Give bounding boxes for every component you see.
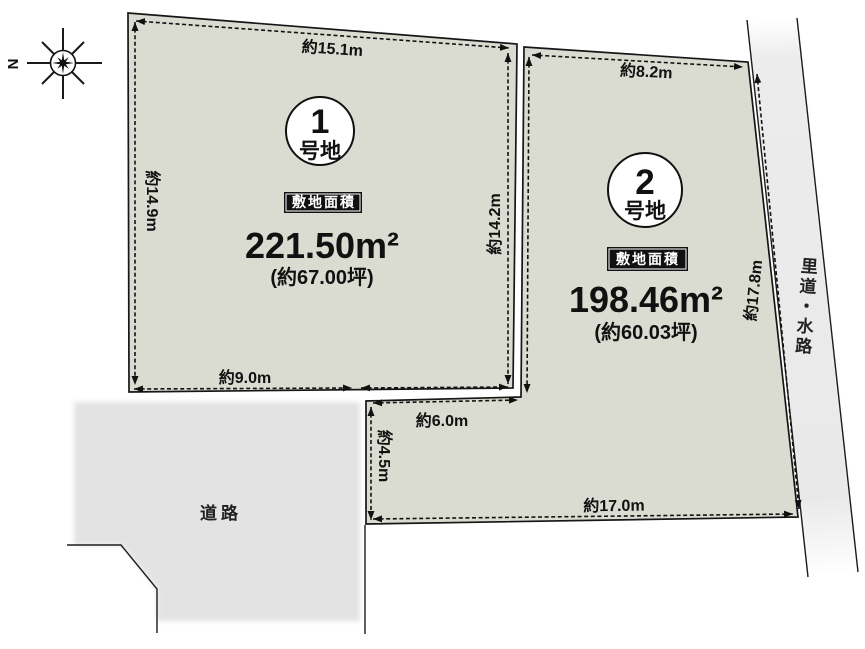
plot-2-area-label: 敷地面積 — [616, 251, 680, 267]
dim-label-plot1-bottom: 約9.0m — [219, 368, 271, 387]
dim-label-plot2-left: 約4.5m — [375, 430, 394, 482]
dim-label-plot1-left: 約14.9m — [143, 170, 162, 231]
dim-label-plot2-bottom: 約17.0m — [583, 496, 645, 516]
dim-label-plot2-step: 約6.0m — [416, 411, 468, 430]
plot-1-area-tsubo: (約67.00坪) — [270, 265, 373, 289]
plot-1-area-label: 敷地面積 — [292, 194, 356, 210]
dim-label-plot1-right: 約14.2m — [485, 193, 504, 254]
north-label: N — [5, 59, 22, 70]
plot-2-area-tsubo: (約60.03坪) — [594, 320, 697, 344]
plot-2-suffix: 号地 — [624, 199, 666, 223]
plot-1-suffix: 号地 — [299, 139, 341, 163]
site-plan-canvas: 約15.1m 約14.9m 約14.2m 約9.0m 約8.2m 約17.8m … — [0, 0, 865, 649]
compass-icon: N — [5, 28, 102, 99]
road-label: 道路 — [200, 503, 242, 523]
plot-1-badge: 1 号地 — [286, 97, 354, 165]
land-plot-diagram: 約15.1m 約14.9m 約14.2m 約9.0m 約8.2m 約17.8m … — [0, 0, 865, 649]
plot-1-number: 1 — [311, 103, 330, 141]
plot-1-area-value: 221.50m² — [245, 225, 399, 266]
plot-2-badge: 2 号地 — [608, 153, 682, 227]
plot-2-area-value: 198.46m² — [569, 279, 723, 320]
plot-2-number: 2 — [635, 163, 654, 202]
